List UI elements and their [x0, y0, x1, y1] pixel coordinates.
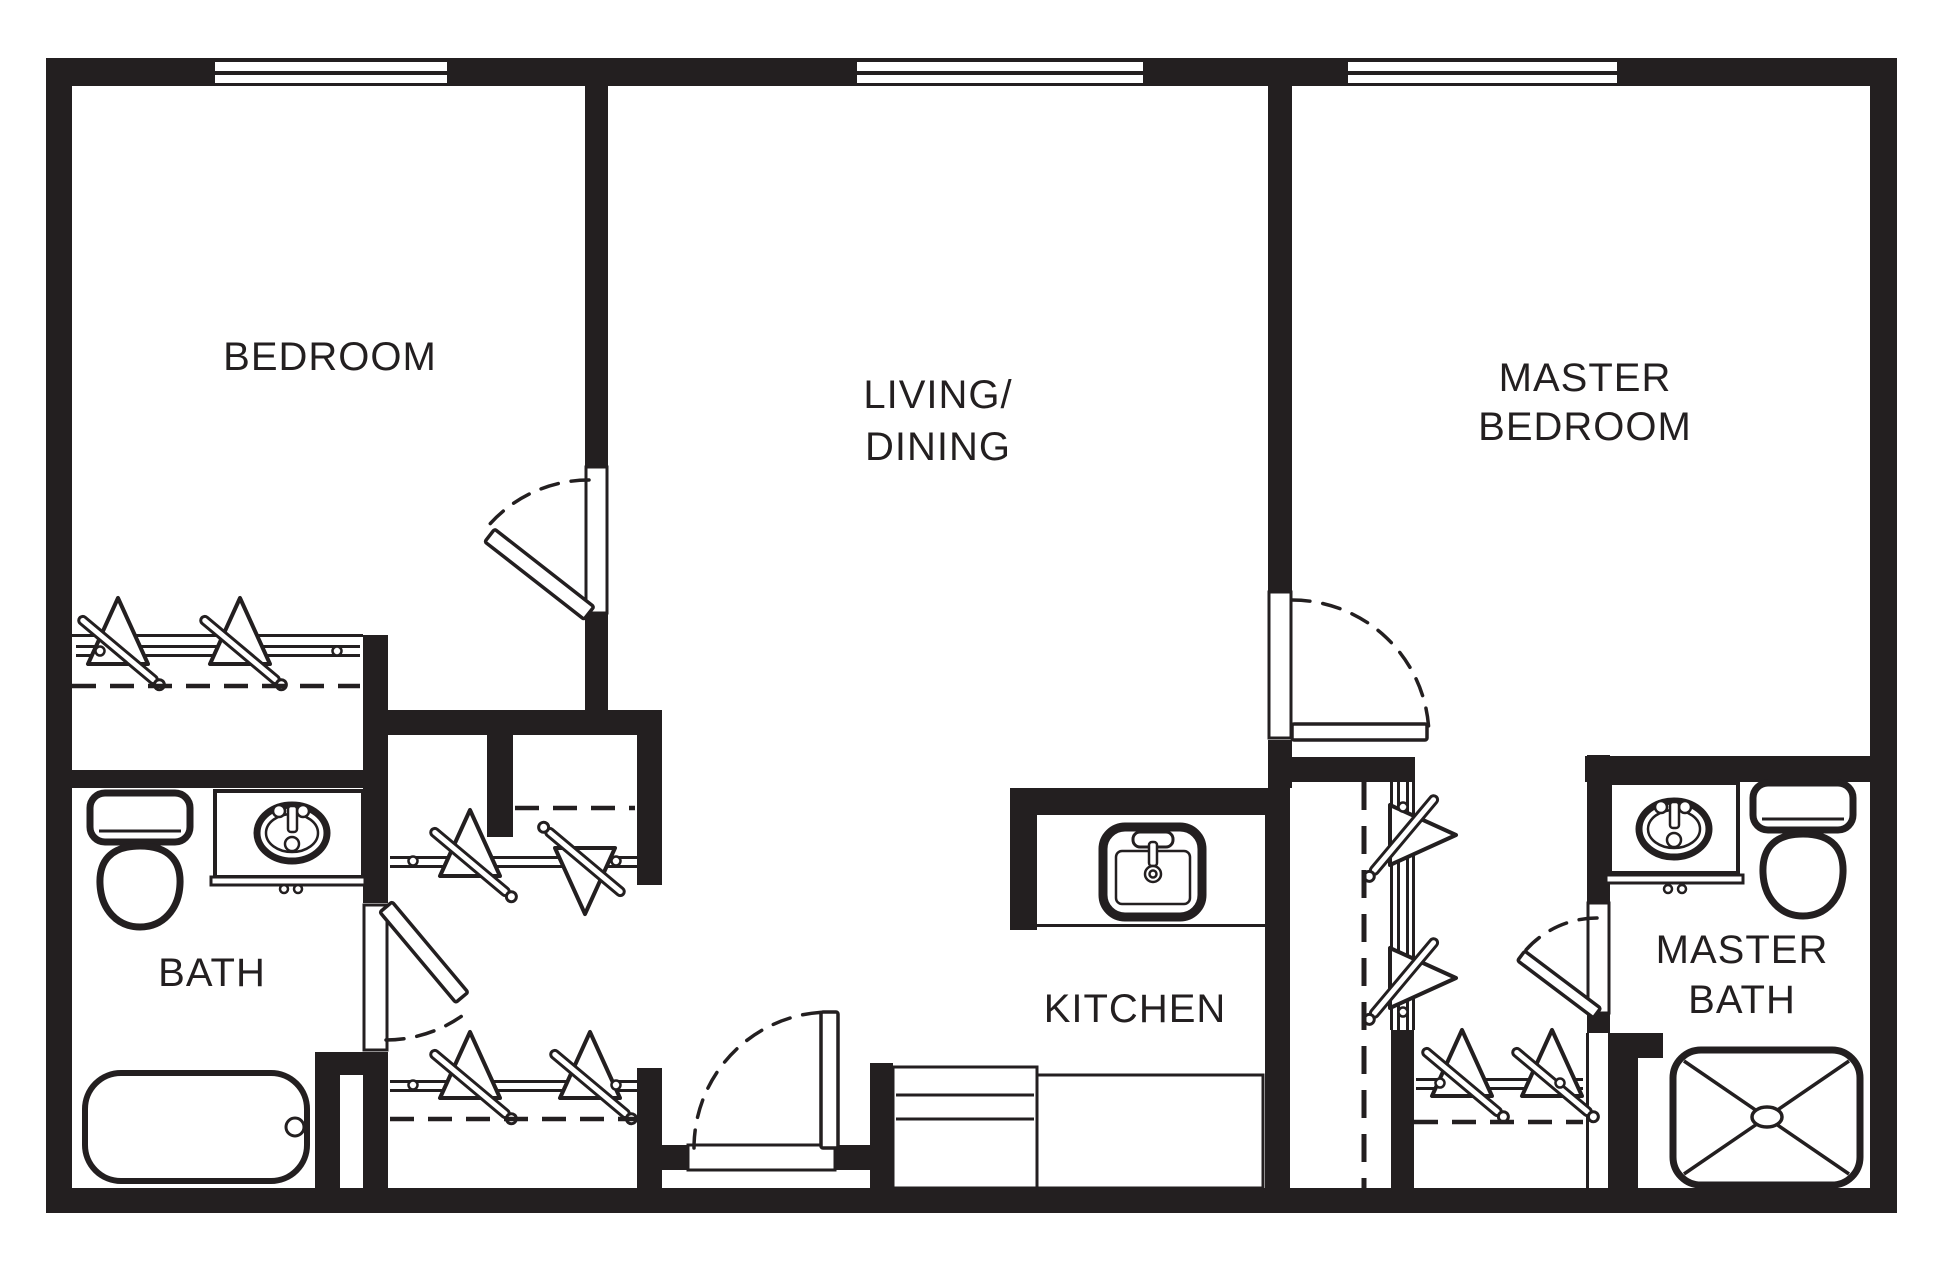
door-swing-icon: [1518, 903, 1609, 1018]
closet-rod-icon: [1414, 1030, 1600, 1124]
room-label-master-bedroom-1: MASTER: [1499, 356, 1672, 400]
room-label-master-bedroom-2: BEDROOM: [1478, 405, 1692, 449]
wall-niche: [340, 1075, 363, 1188]
bathtub-icon: [85, 1073, 307, 1181]
floor-plan-page: BEDROOM LIVING/ DINING MASTER BEDROOM BA…: [0, 0, 1948, 1277]
room-label-living-dining-1: LIVING/: [863, 373, 1012, 417]
floor-plan-canvas: BEDROOM LIVING/ DINING MASTER BEDROOM BA…: [0, 0, 1948, 1277]
closet-rod-icon: [390, 1032, 638, 1126]
door-swing-icon: [1269, 592, 1429, 740]
room-label-master-bath-2: BATH: [1688, 978, 1796, 1022]
room-label-bedroom: BEDROOM: [223, 335, 437, 379]
kitchen-sink-icon: [1037, 827, 1265, 927]
closet-rod-icon: [390, 808, 640, 914]
closet-rod-icon: [72, 598, 363, 692]
vanity-sink-icon: [211, 791, 365, 893]
door-swing-icon: [364, 902, 471, 1050]
entry-threshold: [688, 1145, 835, 1170]
door-swing-icon: [484, 467, 607, 619]
counter-icon: [893, 1067, 1263, 1188]
room-label-living-dining-2: DINING: [865, 425, 1011, 469]
room-label-master-bath-1: MASTER: [1656, 928, 1829, 972]
toilet-icon: [1753, 783, 1853, 916]
vanity-sink-icon: [1606, 783, 1743, 893]
shower-icon: [1673, 1050, 1860, 1185]
room-label-kitchen: KITCHEN: [1044, 987, 1227, 1031]
toilet-icon: [90, 793, 190, 927]
room-label-bath: BATH: [158, 951, 266, 995]
door-swing-icon: [688, 1012, 838, 1170]
